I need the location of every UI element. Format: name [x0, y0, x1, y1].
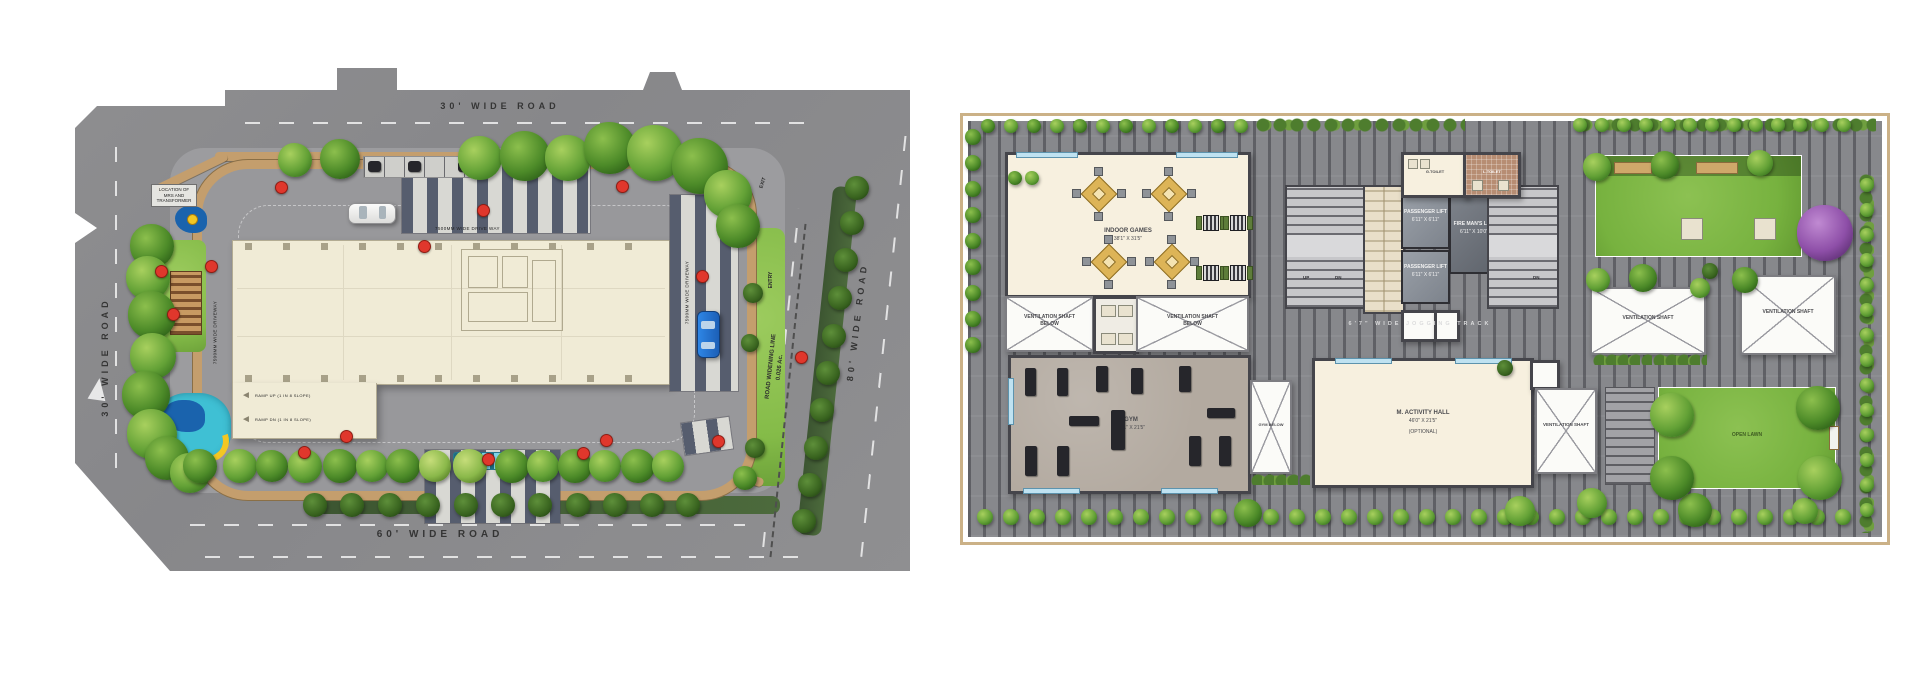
tree-icon	[1367, 509, 1383, 525]
tree-icon	[1860, 328, 1874, 342]
chess-table	[1203, 265, 1219, 281]
tree-icon	[1690, 278, 1710, 298]
tree-icon	[1835, 509, 1851, 525]
tree-icon	[965, 311, 981, 327]
gym-below-label: GYM BELOW	[1252, 422, 1290, 428]
tree-icon	[1583, 153, 1611, 181]
column	[549, 243, 556, 250]
tree-icon	[1771, 118, 1785, 132]
chess-table	[1230, 265, 1246, 281]
marker-icon	[616, 180, 629, 193]
tree-icon	[1471, 509, 1487, 525]
indoor-games-room: INDOOR GAMES 38'1" X 31'5"	[1005, 152, 1251, 298]
bench	[1223, 266, 1229, 280]
tree-icon	[1165, 119, 1179, 133]
tree-icon	[822, 324, 846, 348]
tree-icon	[256, 450, 288, 482]
window	[1176, 152, 1238, 158]
tree-icon	[798, 473, 822, 497]
marker-icon	[418, 240, 431, 253]
bench	[1247, 216, 1253, 230]
column	[435, 375, 442, 382]
marker-icon	[155, 265, 168, 278]
entry-label: ENTRY	[768, 260, 774, 300]
gym-equipment-icon	[1131, 368, 1143, 394]
tree-icon	[340, 493, 364, 517]
tree-icon	[323, 449, 357, 483]
bench	[1223, 216, 1229, 230]
activity-hall-label: M. ACTIVITY HALL 46'0" X 21'5" (OPTIONAL…	[1315, 409, 1531, 436]
vent-box	[1530, 360, 1560, 390]
roof-lawn	[1595, 155, 1802, 257]
amenity-floor-plan: INDOOR GAMES 38'1" X 31'5" VENTILATION S…	[960, 113, 1890, 545]
column	[245, 375, 252, 382]
window	[1008, 378, 1014, 425]
tree-icon	[528, 493, 552, 517]
tree-icon	[716, 204, 760, 248]
tree-icon	[1027, 119, 1041, 133]
tree-icon	[1096, 119, 1110, 133]
marker-icon	[696, 270, 709, 283]
site-plan: ◄ RAMP UP (1 IN 8 SLOPE) ◄ RAMP DN (1 IN…	[75, 68, 910, 575]
bench	[1247, 266, 1253, 280]
window	[1161, 488, 1218, 494]
lane-line	[205, 556, 805, 558]
tree-icon	[1678, 493, 1712, 527]
column	[359, 243, 366, 250]
column	[587, 375, 594, 382]
chair	[1094, 212, 1103, 221]
bench	[1829, 426, 1839, 450]
ventilation-shaft-below-room: VENTILATION SHAFT BELOW	[1136, 296, 1249, 352]
tree-icon	[1860, 353, 1874, 367]
chess-table	[1203, 215, 1219, 231]
passenger-lift-1: PASSENGER LIFT 6'11" X 6'11"	[1401, 195, 1450, 249]
tree-icon	[1627, 509, 1643, 525]
bench	[1696, 162, 1738, 174]
window	[1023, 488, 1080, 494]
chair	[1145, 257, 1154, 266]
tree-icon	[1573, 118, 1587, 132]
hedge-row	[1255, 117, 1465, 133]
tree-icon	[1341, 509, 1357, 525]
planter	[1681, 218, 1703, 240]
vent-label: VENTILATION SHAFT	[1537, 422, 1595, 429]
tree-icon	[965, 207, 981, 223]
tree-icon	[965, 259, 981, 275]
marker-icon	[600, 434, 613, 447]
gym-equipment-icon	[1057, 368, 1068, 396]
marker-icon	[577, 447, 590, 460]
ramp-dn-label: RAMP DN (1 IN 8 SLOPE)	[255, 417, 311, 422]
tree-icon	[1315, 509, 1331, 525]
tree-icon	[1595, 118, 1609, 132]
white-car-icon	[348, 203, 396, 224]
chair	[1104, 280, 1113, 289]
tree-icon	[733, 466, 757, 490]
jogging-track-label: 6'7" WIDE JOGGING TRACK	[1320, 321, 1520, 327]
room-dim: 38'1" X 31'5"	[1008, 236, 1248, 243]
gym-equipment-icon	[1025, 368, 1036, 396]
tree-icon	[1119, 119, 1133, 133]
tree-icon	[320, 139, 360, 179]
tree-icon	[1629, 264, 1657, 292]
marker-icon	[167, 308, 180, 321]
game-table	[1091, 244, 1128, 281]
chair	[1187, 189, 1196, 198]
tree-icon	[1004, 119, 1018, 133]
chair	[1167, 235, 1176, 244]
tree-icon	[1757, 509, 1773, 525]
column	[321, 243, 328, 250]
tree-icon	[1731, 509, 1747, 525]
tree-icon	[1445, 509, 1461, 525]
lift-name: PASSENGER LIFT	[1403, 264, 1448, 272]
staircase-right	[1487, 185, 1559, 309]
tree-icon	[745, 438, 765, 458]
gym-equipment-icon	[1219, 436, 1231, 466]
tree-icon	[566, 493, 590, 517]
tree-icon	[1549, 509, 1565, 525]
marker-icon	[275, 181, 288, 194]
bench	[1196, 266, 1202, 280]
room-name: VENTILATION SHAFT	[1138, 314, 1247, 321]
game-table	[1081, 176, 1118, 213]
tree-icon	[1617, 118, 1631, 132]
tree-icon	[603, 493, 627, 517]
tree-icon	[1008, 171, 1022, 185]
tree-icon	[1860, 253, 1874, 267]
vent-below-label: VENTILATION SHAFT BELOW	[1138, 314, 1247, 329]
tree-icon	[1683, 118, 1697, 132]
lane-line	[115, 138, 117, 468]
lane-line	[245, 122, 805, 124]
tree-icon	[965, 233, 981, 249]
gym-equipment-icon	[1179, 366, 1191, 392]
tree-icon	[1860, 453, 1874, 467]
tree-icon	[1081, 509, 1097, 525]
building-core	[461, 249, 563, 331]
building-ramp-wing: ◄ RAMP UP (1 IN 8 SLOPE) ◄ RAMP DN (1 IN…	[232, 383, 377, 439]
chair	[1164, 167, 1173, 176]
tree-icon	[1055, 509, 1071, 525]
ramp-arrow-icon: ◄	[241, 415, 251, 425]
tree-icon	[845, 176, 869, 200]
window	[1016, 152, 1078, 158]
column	[283, 375, 290, 382]
lift-dim: 6'11" X 6'11"	[1403, 217, 1448, 225]
tree-icon	[965, 155, 981, 171]
tree-icon	[981, 119, 995, 133]
chair	[1082, 257, 1091, 266]
room-sub: BELOW	[1138, 321, 1247, 328]
room-name: VENTILATION SHAFT	[1007, 314, 1092, 321]
flowering-tree-icon	[1797, 205, 1853, 261]
tree-icon	[804, 436, 828, 460]
column	[397, 243, 404, 250]
tree-icon	[1860, 503, 1874, 517]
tree-icon	[743, 283, 763, 303]
game-table	[1154, 244, 1191, 281]
tree-icon	[834, 248, 858, 272]
bench	[1614, 162, 1652, 174]
tree-icon	[1837, 118, 1851, 132]
tree-icon	[416, 493, 440, 517]
tree-icon	[453, 449, 487, 483]
tree-icon	[1211, 119, 1225, 133]
tree-icon	[1860, 428, 1874, 442]
tree-icon	[278, 143, 312, 177]
tree-icon	[589, 450, 621, 482]
tree-icon	[1639, 118, 1653, 132]
tree-icon	[1727, 118, 1741, 132]
utility-room	[1093, 296, 1139, 354]
column	[283, 243, 290, 250]
column	[625, 375, 632, 382]
column	[397, 375, 404, 382]
tree-icon	[303, 493, 327, 517]
window	[1335, 358, 1392, 364]
paver-exit-drive	[681, 417, 733, 455]
tree-icon	[500, 131, 550, 181]
chair	[1072, 189, 1081, 198]
vent-below-label: VENTILATION SHAFT BELOW	[1007, 314, 1092, 329]
tree-icon	[1289, 509, 1305, 525]
ramp-up-label: RAMP UP (1 IN 8 SLOPE)	[255, 393, 311, 398]
lane-line	[190, 524, 745, 526]
marker-icon	[795, 351, 808, 364]
gym-room: GYM 38'1" X 21'5"	[1008, 355, 1251, 494]
gym-equipment-icon	[1057, 446, 1069, 476]
tree-icon	[676, 493, 700, 517]
ramp-arrow-icon: ◄	[241, 391, 251, 401]
tree-icon	[1860, 378, 1874, 392]
tree-icon	[640, 493, 664, 517]
ladies-toilet: L.TOILET	[1463, 152, 1521, 198]
drive-top-note: 7500MM WIDE DRIVE WAY	[435, 226, 500, 231]
game-table	[1151, 176, 1188, 213]
gym-equipment-icon	[1111, 410, 1125, 450]
drive-left-note: 7500MM WIDE DRIVEWAY	[213, 288, 218, 378]
gents-toilet: G.TOILET	[1401, 152, 1469, 198]
tree-icon	[965, 129, 981, 145]
column	[625, 243, 632, 250]
planter-hedge	[1250, 473, 1310, 485]
tree-icon	[1025, 171, 1039, 185]
stair-dn-label: DN	[1335, 275, 1342, 280]
tree-icon	[1419, 509, 1435, 525]
tree-icon	[223, 449, 257, 483]
tree-icon	[1653, 509, 1669, 525]
tree-icon	[816, 361, 840, 385]
tree-icon	[1159, 509, 1175, 525]
room-name: M. ACTIVITY HALL	[1315, 409, 1531, 418]
tree-icon	[1749, 118, 1763, 132]
pergola	[170, 271, 202, 335]
toilet-label: L.TOILET	[1466, 169, 1518, 175]
room-dim: 46'0" X 21'5"	[1315, 418, 1531, 425]
tree-icon	[1651, 151, 1679, 179]
column	[549, 375, 556, 382]
column	[473, 375, 480, 382]
planter	[1754, 218, 1776, 240]
gym-equipment-icon	[1096, 366, 1108, 392]
tree-icon	[1211, 509, 1227, 525]
tree-icon	[458, 136, 502, 180]
gym-equipment-icon	[1069, 416, 1099, 426]
tree-icon	[1142, 119, 1156, 133]
chair	[1117, 189, 1126, 198]
tree-icon	[1073, 119, 1087, 133]
building-grid-line	[343, 245, 344, 380]
tree-icon	[183, 449, 217, 483]
gym-equipment-icon	[1025, 446, 1037, 476]
tree-icon	[652, 450, 684, 482]
toilet-label: G.TOILET	[1404, 169, 1466, 175]
open-lawn-label: OPEN LAWN	[1659, 432, 1835, 439]
tree-icon	[1650, 456, 1694, 500]
tree-icon	[386, 449, 420, 483]
tree-icon	[454, 493, 478, 517]
tree-icon	[1798, 456, 1842, 500]
tree-icon	[1732, 267, 1758, 293]
planter-hedge	[1592, 353, 1707, 365]
chair	[1127, 257, 1136, 266]
tree-icon	[356, 450, 388, 482]
ventilation-shaft-room: VENTILATION SHAFT	[1535, 388, 1597, 474]
tree-icon	[1107, 509, 1123, 525]
staircase-left	[1285, 185, 1365, 309]
tree-icon	[1185, 509, 1201, 525]
tree-icon	[1702, 263, 1718, 279]
tree-icon	[1497, 360, 1513, 376]
vent-label: VENTILATION SHAFT	[1742, 309, 1834, 316]
tree-icon	[1133, 509, 1149, 525]
stair-dn-label: DN	[1533, 275, 1540, 280]
tree-icon	[1050, 119, 1064, 133]
road-label-bottom: 60' WIDE ROAD	[340, 529, 540, 540]
tree-icon	[965, 181, 981, 197]
bench	[1196, 216, 1202, 230]
marker-icon	[298, 446, 311, 459]
gym-below-room: GYM BELOW	[1250, 380, 1292, 474]
tree-icon	[378, 493, 402, 517]
lift-dim: 6'11" X 6'11"	[1403, 272, 1448, 280]
lift-name: PASSENGER LIFT	[1403, 209, 1448, 217]
tree-icon	[527, 450, 559, 482]
marker-icon	[205, 260, 218, 273]
tree-icon	[741, 334, 759, 352]
column	[587, 243, 594, 250]
tree-icon	[1747, 150, 1773, 176]
building-footprint	[232, 240, 670, 385]
chair	[1094, 167, 1103, 176]
passenger-lift-2: PASSENGER LIFT 6'11" X 6'11"	[1401, 250, 1450, 304]
tree-icon	[1860, 178, 1874, 192]
tree-icon	[1860, 403, 1874, 417]
tree-icon	[1860, 278, 1874, 292]
tree-icon	[1661, 118, 1675, 132]
marker-icon	[340, 430, 353, 443]
tree-icon	[965, 337, 981, 353]
tree-icon	[1577, 488, 1607, 518]
building-grid-line	[451, 245, 452, 380]
road-label-top: 30' WIDE ROAD	[360, 101, 640, 111]
tree-icon	[1796, 386, 1840, 430]
road-label-left: 30' WIDE ROAD	[100, 277, 110, 437]
ventilation-shaft-below-room: VENTILATION SHAFT BELOW	[1005, 296, 1094, 352]
column	[511, 375, 518, 382]
tree-icon	[1793, 118, 1807, 132]
chair	[1164, 212, 1173, 221]
column	[473, 243, 480, 250]
tree-icon	[1029, 509, 1045, 525]
tree-icon	[1860, 203, 1874, 217]
tree-icon	[1505, 496, 1535, 526]
tree-icon	[1586, 268, 1610, 292]
tree-icon	[491, 493, 515, 517]
blue-car-icon	[697, 311, 720, 358]
tree-icon	[1650, 393, 1694, 437]
tree-icon	[1860, 228, 1874, 242]
chess-table	[1230, 215, 1246, 231]
marker-icon	[712, 435, 725, 448]
tree-icon	[840, 211, 864, 235]
room-sub: BELOW	[1007, 321, 1092, 328]
tree-icon	[1234, 119, 1248, 133]
chair	[1167, 280, 1176, 289]
tree-icon	[828, 286, 852, 310]
tree-icon	[419, 450, 451, 482]
tree-icon	[621, 449, 655, 483]
column	[321, 375, 328, 382]
tree-icon	[1234, 499, 1262, 527]
tree-icon	[1815, 118, 1829, 132]
column	[359, 375, 366, 382]
gym-equipment-icon	[1189, 436, 1201, 466]
tree-icon	[1705, 118, 1719, 132]
tree-icon	[792, 509, 816, 533]
column	[245, 243, 252, 250]
tree-icon	[1263, 509, 1279, 525]
chair	[1190, 257, 1199, 266]
activity-hall-room: M. ACTIVITY HALL 46'0" X 21'5" (OPTIONAL…	[1312, 358, 1534, 488]
tree-icon	[1188, 119, 1202, 133]
tree-icon	[1860, 303, 1874, 317]
tree-icon	[965, 285, 981, 301]
master-plan-canvas: ◄ RAMP UP (1 IN 8 SLOPE) ◄ RAMP DN (1 IN…	[0, 0, 1920, 700]
room-note: (OPTIONAL)	[1315, 429, 1531, 436]
gym-equipment-icon	[1207, 408, 1235, 418]
ventilation-shaft-room: VENTILATION SHAFT	[1590, 287, 1706, 355]
transformer-note: LOCATION OF MRS AND TRANSFORMER	[151, 184, 197, 207]
tree-icon	[810, 398, 834, 422]
drive-right-note: 7500MM WIDE DRIVEWAY	[685, 248, 690, 338]
chair	[1142, 189, 1151, 198]
lift-lobby	[1363, 185, 1405, 314]
tree-icon	[977, 509, 993, 525]
play-toy-icon	[187, 214, 198, 225]
tree-icon	[1003, 509, 1019, 525]
chair	[1104, 235, 1113, 244]
marker-icon	[482, 453, 495, 466]
column	[435, 243, 442, 250]
tree-icon	[495, 449, 529, 483]
tree-icon	[1792, 498, 1818, 524]
vent-label: VENTILATION SHAFT	[1592, 315, 1704, 322]
column	[511, 243, 518, 250]
tree-icon	[1860, 478, 1874, 492]
